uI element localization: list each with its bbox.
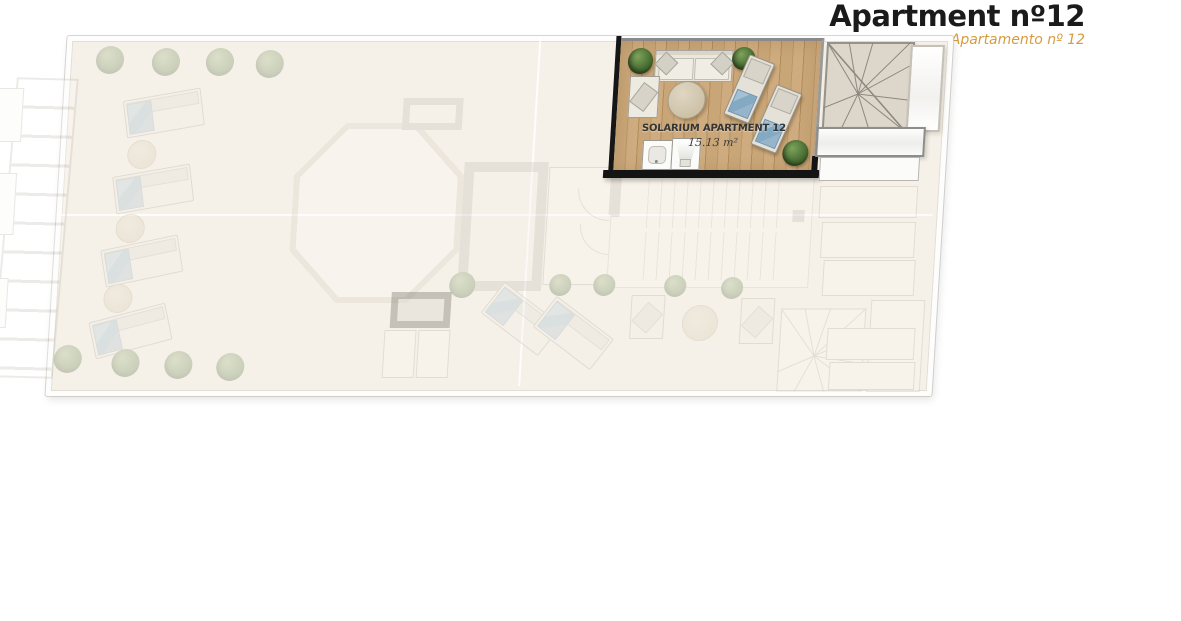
elevator-shaft: [906, 45, 945, 132]
page: Apartment nº12 Apartamento nº 12: [0, 0, 1181, 621]
winder-staircase: [821, 42, 915, 136]
roof-room: [819, 157, 920, 181]
sofa: [654, 50, 734, 82]
solarium-apartment-12: SOLARIUM APARTMENT 12 15.13 m²: [613, 38, 824, 173]
solarium-boundary-bottom: [603, 170, 819, 178]
side-structure: [0, 88, 24, 142]
solarium-boundary-notch: [811, 156, 818, 173]
solarium-area: 15.13 m²: [615, 136, 812, 149]
floor-plan: SOLARIUM APARTMENT 12 15.13 m²: [17, 28, 970, 403]
roof-room: [815, 127, 926, 157]
plant-icon: [627, 48, 654, 74]
armchair: [627, 76, 660, 118]
dark-skylight: [390, 292, 452, 328]
solarium-label: SOLARIUM APARTMENT 12: [616, 123, 813, 134]
round-table: [666, 81, 706, 119]
